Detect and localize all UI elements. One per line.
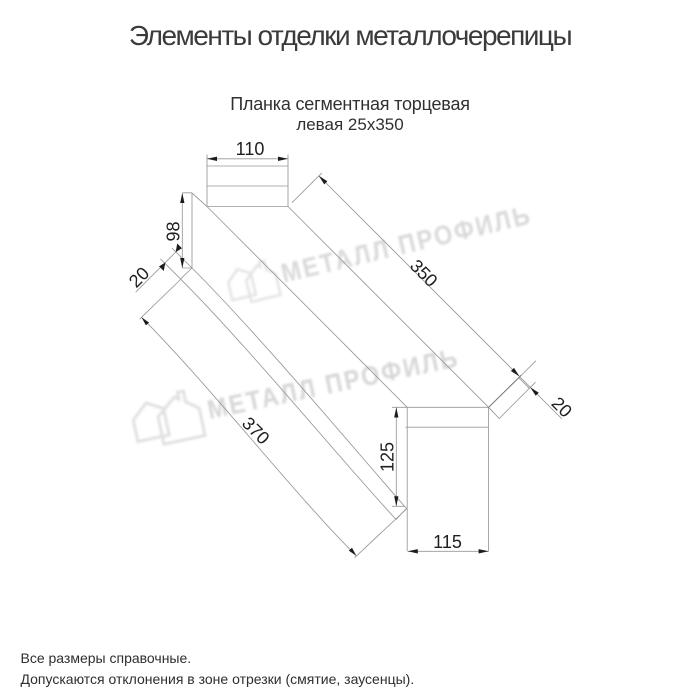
svg-text:Элементы отделки металлочерепи: Элементы отделки металлочерепицы: [129, 20, 572, 51]
svg-text:левая 25x350: левая 25x350: [296, 115, 403, 134]
svg-text:МЕТАЛЛ ПРОФИЛЬ: МЕТАЛЛ ПРОФИЛЬ: [278, 200, 534, 289]
svg-text:125: 125: [378, 442, 398, 472]
svg-text:20: 20: [125, 263, 153, 291]
svg-text:МЕТАЛЛ ПРОФИЛЬ: МЕТАЛЛ ПРОФИЛЬ: [205, 343, 462, 426]
svg-text:350: 350: [406, 256, 441, 291]
svg-text:20: 20: [548, 393, 576, 421]
svg-text:Все размеры справочные.: Все размеры справочные.: [21, 650, 192, 666]
svg-text:110: 110: [236, 139, 265, 159]
svg-text:115: 115: [433, 532, 462, 552]
svg-text:Планка сегментная торцевая: Планка сегментная торцевая: [230, 94, 470, 114]
svg-text:Допускаются отклонения в зоне: Допускаются отклонения в зоне отрезки (с…: [21, 671, 415, 687]
svg-text:98: 98: [164, 221, 184, 241]
